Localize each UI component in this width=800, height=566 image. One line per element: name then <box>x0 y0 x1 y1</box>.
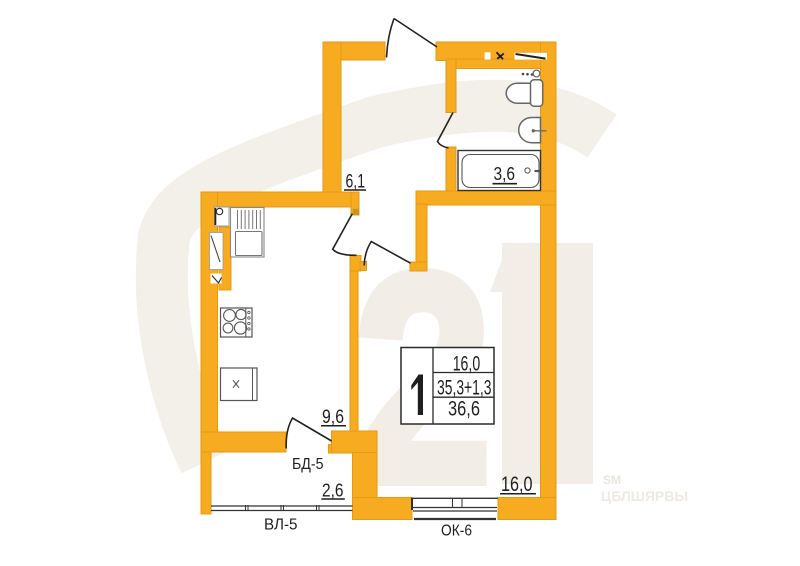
svg-text:35,3+1,3: 35,3+1,3 <box>437 375 492 399</box>
svg-text:16,0: 16,0 <box>501 472 533 496</box>
svg-text:БД-5: БД-5 <box>292 456 324 473</box>
svg-text:SM: SM <box>603 473 621 487</box>
svg-text:36,6: 36,6 <box>448 397 480 421</box>
svg-text:ОК-6: ОК-6 <box>441 522 472 539</box>
svg-text:3,6: 3,6 <box>494 163 516 184</box>
svg-text:16,0: 16,0 <box>453 352 481 376</box>
svg-text:2,6: 2,6 <box>322 479 344 500</box>
svg-text:ВЛ-5: ВЛ-5 <box>264 516 298 533</box>
svg-text:9,6: 9,6 <box>322 407 344 428</box>
svg-text:ЦБЛШЯРВЫ: ЦБЛШЯРВЫ <box>601 488 688 504</box>
